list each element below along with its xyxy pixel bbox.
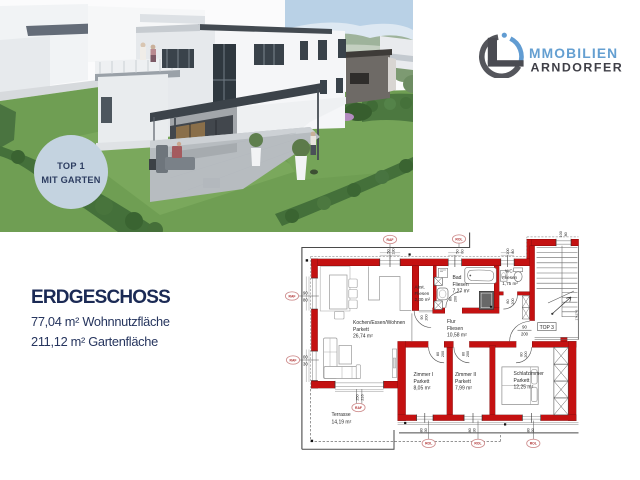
svg-text:RAF: RAF [289, 294, 296, 298]
svg-text:12,25 m²: 12,25 m² [514, 385, 534, 391]
svg-text:Parkett: Parkett [455, 379, 471, 385]
svg-text:Zimmer I: Zimmer I [414, 372, 434, 378]
svg-text:216: 216 [361, 394, 365, 400]
svg-text:2,30 m²: 2,30 m² [415, 297, 431, 302]
svg-text:80: 80 [303, 298, 308, 303]
svg-text:RAF: RAF [290, 358, 297, 362]
svg-text:80: 80 [506, 299, 510, 303]
svg-text:200: 200 [521, 332, 529, 337]
svg-text:30: 30 [473, 428, 477, 432]
svg-text:80: 80 [461, 352, 465, 356]
svg-text:7,99 m²: 7,99 m² [455, 386, 472, 392]
svg-text:80: 80 [519, 352, 523, 356]
svg-text:200: 200 [425, 314, 429, 320]
svg-text:Kochen/Essen/Wohnen: Kochen/Essen/Wohnen [353, 320, 405, 326]
svg-text:80: 80 [419, 428, 423, 432]
svg-text:17x17,6: 17x17,6 [575, 309, 579, 320]
svg-text:Fliesen: Fliesen [447, 326, 463, 332]
svg-text:80: 80 [461, 249, 465, 253]
svg-text:80: 80 [436, 352, 440, 356]
svg-text:30: 30 [531, 428, 535, 432]
svg-text:80: 80 [449, 297, 453, 301]
svg-text:80: 80 [526, 428, 530, 432]
svg-text:50: 50 [456, 249, 460, 253]
svg-text:RAF: RAF [355, 406, 362, 410]
svg-text:200: 200 [524, 351, 528, 357]
svg-text:00: 00 [303, 354, 308, 359]
svg-text:1,75 m²: 1,75 m² [502, 281, 518, 286]
svg-text:90: 90 [303, 290, 308, 295]
svg-text:50: 50 [386, 249, 390, 253]
svg-text:Fliesen: Fliesen [502, 275, 517, 280]
svg-text:ROL: ROL [425, 442, 432, 446]
svg-text:Flur: Flur [447, 319, 456, 325]
svg-text:WC: WC [505, 269, 513, 274]
svg-text:Schlafzimmer: Schlafzimmer [514, 371, 545, 377]
svg-text:250: 250 [356, 394, 360, 400]
svg-text:200: 200 [453, 296, 457, 302]
svg-text:Terrasse: Terrasse [332, 412, 351, 418]
svg-text:100: 100 [559, 231, 563, 237]
svg-text:130: 130 [391, 248, 395, 254]
svg-text:90: 90 [420, 315, 424, 319]
svg-text:8,05 m²: 8,05 m² [414, 386, 431, 392]
svg-text:30: 30 [424, 428, 428, 432]
svg-text:80: 80 [468, 428, 472, 432]
svg-text:Fliesen: Fliesen [453, 282, 469, 288]
svg-text:80: 80 [511, 249, 515, 253]
svg-text:ROL: ROL [474, 442, 481, 446]
svg-text:ROL: ROL [455, 237, 462, 241]
svg-text:200: 200 [511, 298, 515, 304]
svg-text:TOP 3: TOP 3 [540, 325, 554, 331]
svg-text:200: 200 [466, 351, 470, 357]
svg-text:ROL: ROL [530, 442, 537, 446]
svg-text:26,74 m²: 26,74 m² [353, 334, 373, 340]
svg-text:Zimmer II: Zimmer II [455, 372, 476, 378]
svg-text:200: 200 [441, 351, 445, 357]
svg-text:Fliesen: Fliesen [415, 291, 430, 296]
svg-text:7,27 m²: 7,27 m² [453, 289, 470, 295]
svg-text:Abst.: Abst. [415, 285, 425, 290]
svg-text:90: 90 [522, 325, 527, 330]
svg-text:Parkett: Parkett [514, 378, 530, 384]
svg-text:14,19 m²: 14,19 m² [332, 419, 352, 425]
svg-text:80: 80 [564, 232, 568, 236]
svg-text:Parkett: Parkett [353, 327, 369, 333]
svg-text:100: 100 [506, 248, 510, 254]
svg-text:Bad: Bad [453, 275, 462, 281]
svg-text:Parkett: Parkett [414, 379, 430, 385]
svg-text:RAF: RAF [387, 238, 394, 242]
svg-text:30: 30 [303, 362, 308, 367]
svg-text:10,58 m²: 10,58 m² [447, 333, 467, 339]
